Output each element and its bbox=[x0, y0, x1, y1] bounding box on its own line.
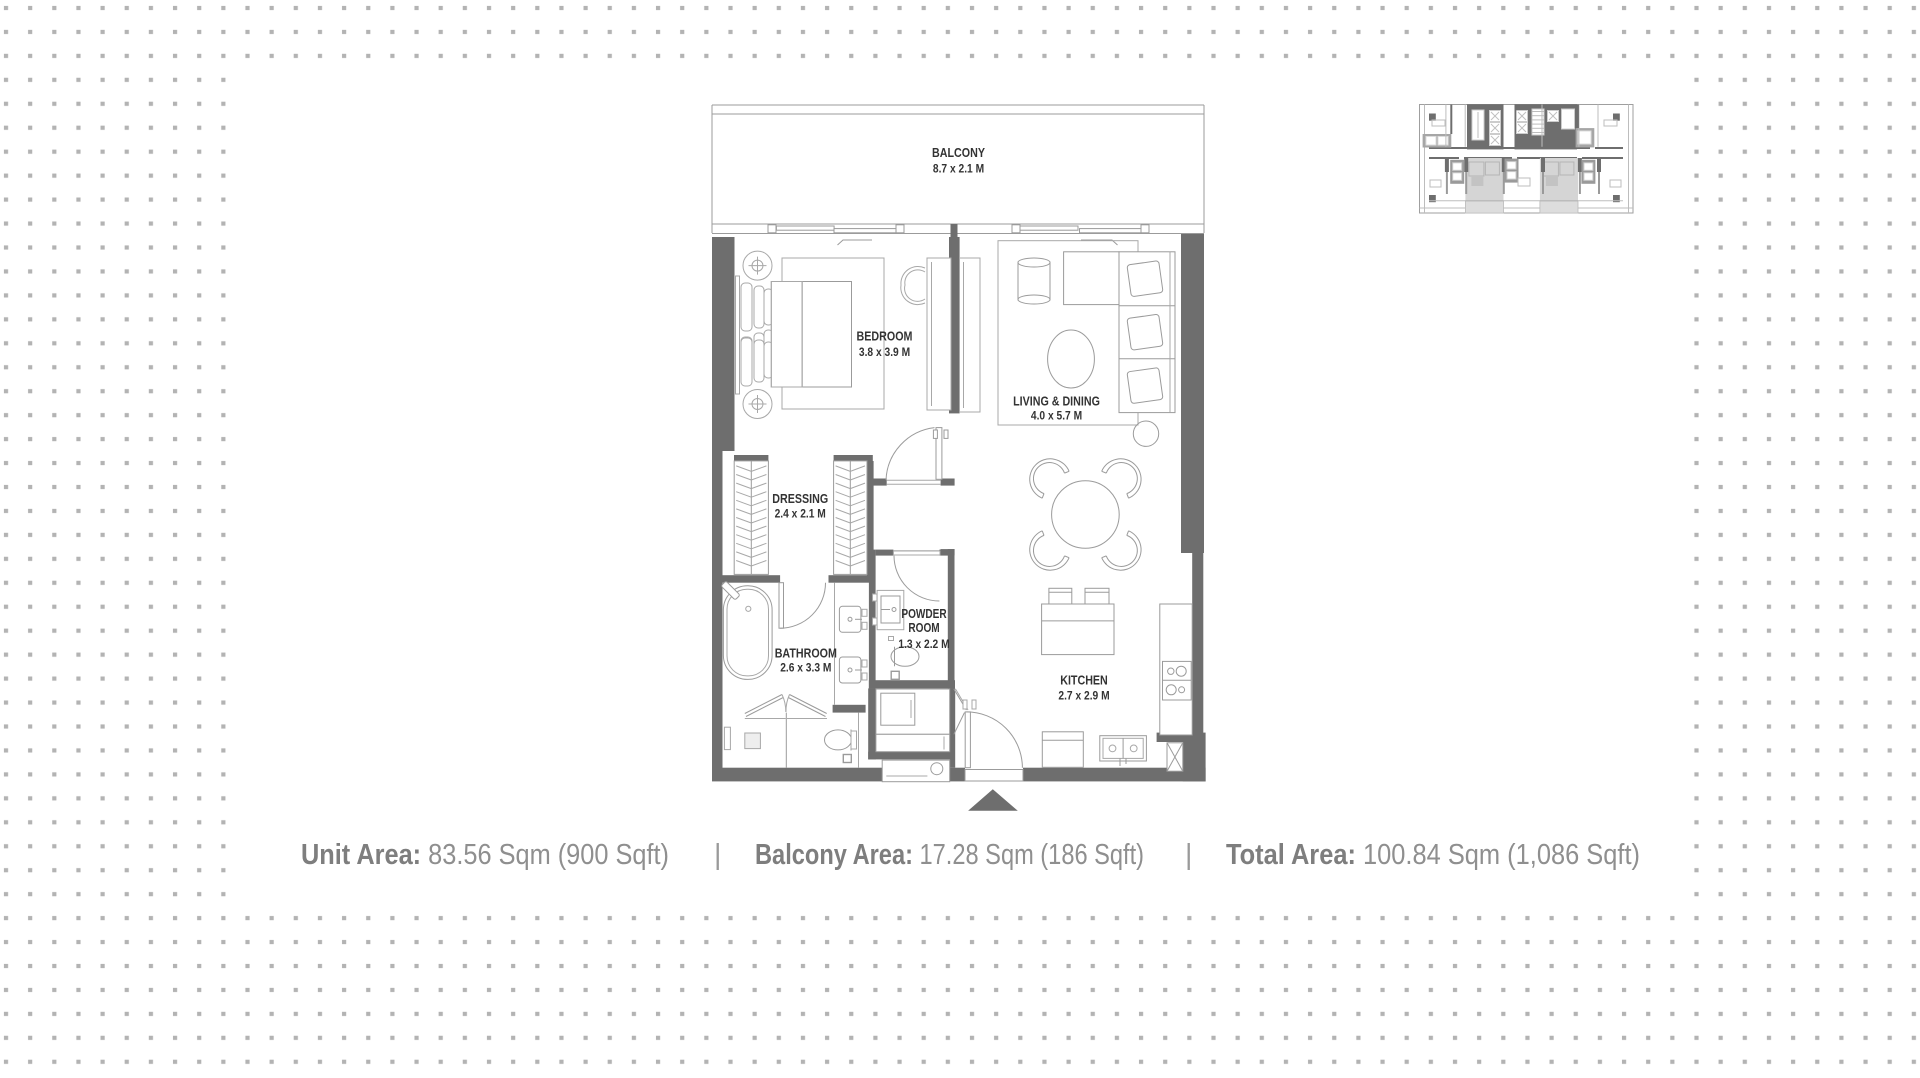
svg-text:LIVING & DINING: LIVING & DINING bbox=[1013, 395, 1100, 409]
svg-text:3.8 x 3.9 M: 3.8 x 3.9 M bbox=[859, 346, 910, 359]
svg-text:2.4 x 2.1 M: 2.4 x 2.1 M bbox=[775, 508, 826, 521]
svg-text:ROOM: ROOM bbox=[908, 622, 939, 635]
svg-text:KITCHEN: KITCHEN bbox=[1060, 674, 1108, 688]
svg-text:BEDROOM: BEDROOM bbox=[857, 330, 913, 344]
svg-text:DRESSING: DRESSING bbox=[772, 492, 828, 506]
svg-text:2.6 x 3.3 M: 2.6 x 3.3 M bbox=[780, 662, 831, 675]
svg-text:2.7 x 2.9 M: 2.7 x 2.9 M bbox=[1058, 690, 1109, 703]
svg-text:POWDER: POWDER bbox=[901, 608, 946, 621]
svg-text:BATHROOM: BATHROOM bbox=[775, 647, 837, 661]
svg-text:4.0 x 5.7 M: 4.0 x 5.7 M bbox=[1031, 410, 1082, 423]
svg-text:BALCONY: BALCONY bbox=[932, 146, 985, 160]
svg-text:8.7 x 2.1 M: 8.7 x 2.1 M bbox=[933, 163, 984, 176]
svg-text:1.3 x 2.2 M: 1.3 x 2.2 M bbox=[898, 638, 949, 651]
